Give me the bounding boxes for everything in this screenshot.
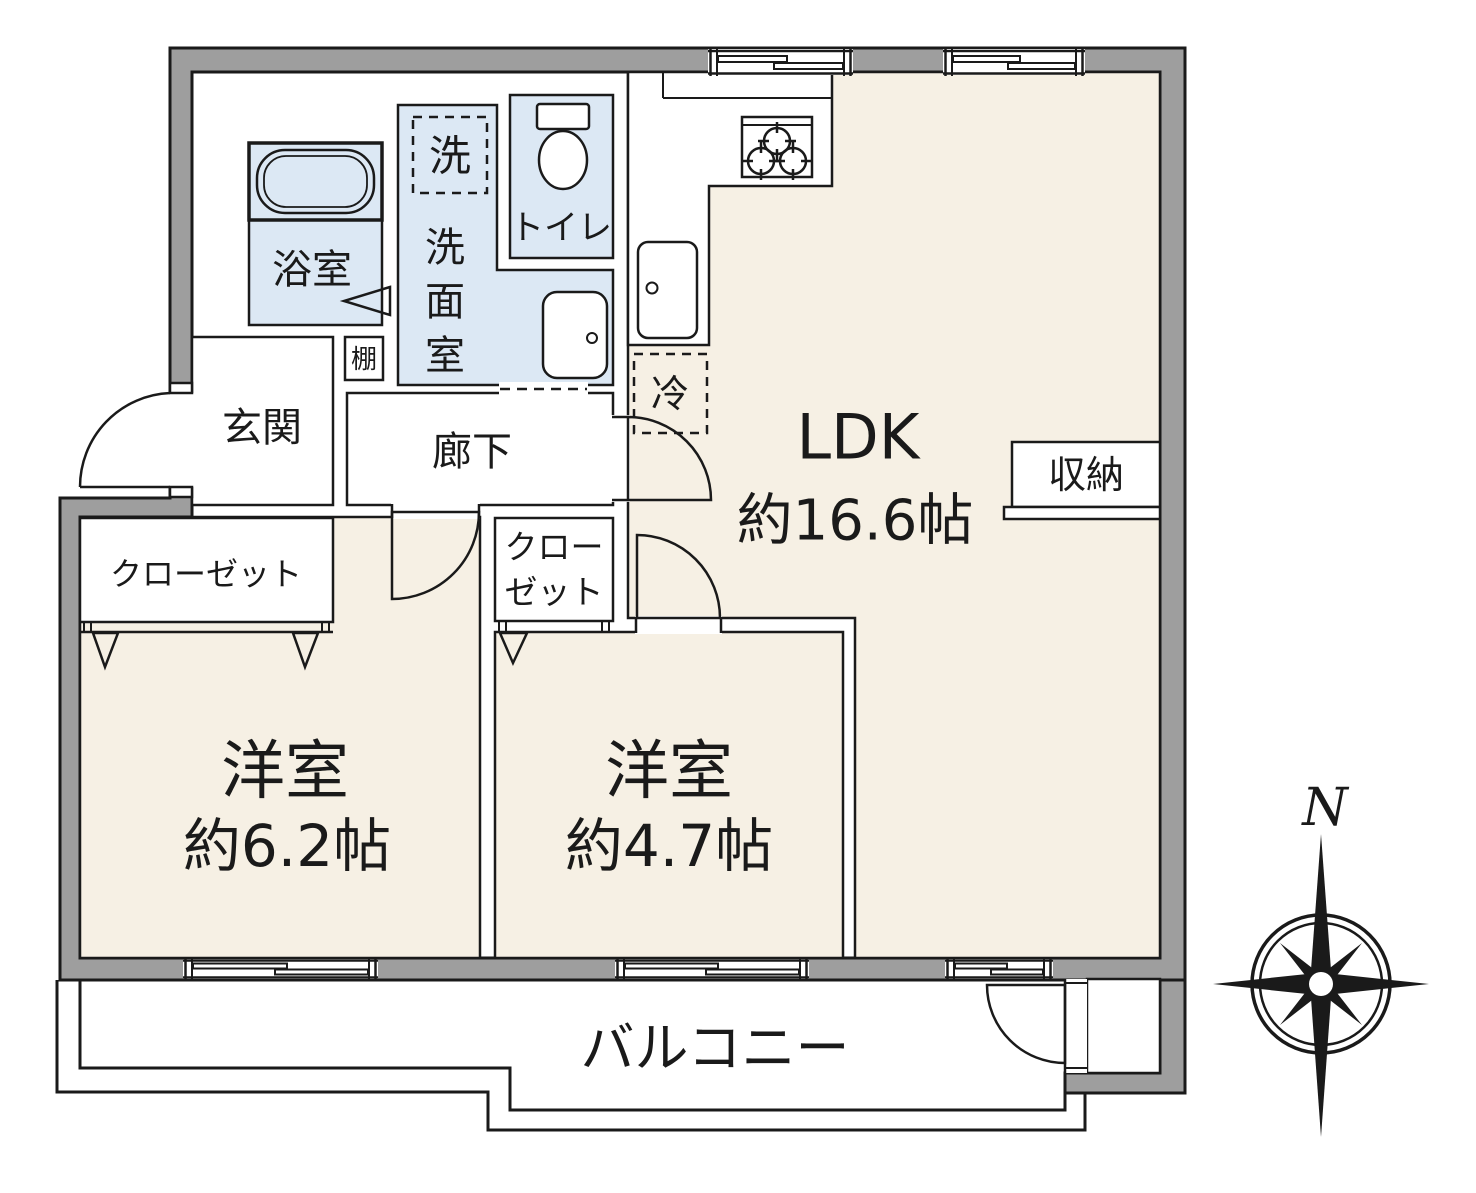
closet-small-label-2: ゼット: [505, 573, 604, 612]
vanity-sink-icon: [543, 292, 607, 378]
bathroom-label: 浴室: [272, 247, 352, 293]
washroom-label-char1: 洗: [425, 225, 465, 271]
entrance: 玄関: [192, 337, 333, 505]
hallway: 廊下: [347, 393, 613, 505]
floorplan-drawing: 冷 収納 浴室 洗 洗 面 室 トイレ 玄関 棚: [0, 0, 1476, 1193]
compass-north-label: N: [1300, 778, 1349, 838]
balcony-side-enclosure: [987, 979, 1185, 1093]
washroom-label-char3: 室: [425, 333, 465, 379]
bedroom1-label: 洋室: [221, 735, 349, 809]
bedroom1-size-label: 約6.2帖: [183, 812, 391, 880]
hallway-label: 廊下: [432, 429, 512, 475]
front-door: [80, 383, 194, 497]
toilet-label: トイレ: [510, 208, 612, 248]
window-bottom-bedroom2: [615, 958, 809, 980]
compass-icon: N: [1213, 778, 1429, 1137]
window-top-1: [708, 48, 853, 76]
entrance-label: 玄関: [222, 405, 302, 451]
storage-unit: 収納: [1004, 442, 1160, 519]
toilet-tank-icon: [537, 104, 589, 129]
balcony-label: バルコニー: [581, 1017, 850, 1080]
bathroom-unit: 浴室: [249, 143, 390, 325]
shelf-label: 棚: [351, 345, 377, 375]
washroom-label-char2: 面: [425, 279, 465, 325]
closet-main-label: クローゼット: [110, 555, 302, 593]
storage-label: 収納: [1048, 453, 1124, 497]
floorplan-page: 冷 収納 浴室 洗 洗 面 室 トイレ 玄関 棚: [0, 0, 1476, 1193]
bedroom2-size-label: 約4.7帖: [565, 812, 773, 880]
enclosure-door-arc: [987, 985, 1065, 1063]
bedroom2-label: 洋室: [605, 735, 733, 809]
door-arc: [80, 393, 170, 487]
washroom-sliding-door: [499, 382, 588, 396]
ldk-label: LDK: [797, 401, 921, 474]
shelf: 棚: [345, 337, 383, 380]
ldk-size-label: 約16.6帖: [737, 489, 974, 554]
closet-small-label-1: クロー: [505, 528, 604, 567]
toilet-room: トイレ: [510, 95, 613, 258]
washer-label: 洗: [429, 132, 471, 181]
window-top-2: [943, 48, 1085, 76]
balcony-railing: [57, 980, 1085, 1130]
fridge-label: 冷: [651, 372, 689, 416]
toilet-bowl-icon: [539, 131, 587, 189]
window-bottom-ldk: [945, 958, 1053, 980]
window-bottom-bedroom1: [183, 958, 378, 980]
